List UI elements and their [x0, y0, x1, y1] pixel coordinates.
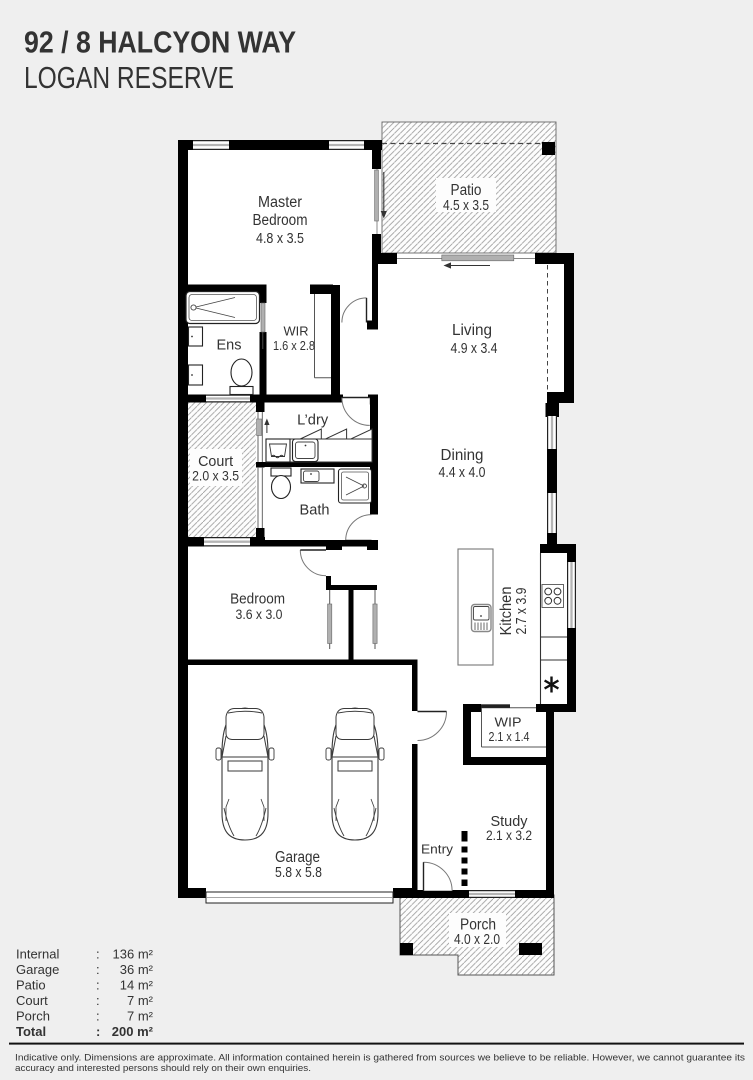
svg-text:accuracy and interested person: accuracy and interested persons should r… — [15, 1063, 311, 1073]
svg-text:4.0 x 2.0: 4.0 x 2.0 — [454, 932, 500, 948]
svg-text:2.7 x 3.9: 2.7 x 3.9 — [514, 588, 530, 635]
svg-text:4.8 x 3.5: 4.8 x 3.5 — [256, 231, 304, 247]
svg-text:2.0 x 3.5: 2.0 x 3.5 — [192, 468, 239, 484]
svg-text:Bedroom: Bedroom — [253, 212, 308, 229]
svg-text:14 m²: 14 m² — [120, 978, 154, 993]
svg-text::: : — [96, 947, 100, 962]
svg-text:1.6 x 2.8: 1.6 x 2.8 — [273, 339, 315, 353]
svg-text:7 m²: 7 m² — [127, 1009, 154, 1024]
svg-text:5.8 x 5.8: 5.8 x 5.8 — [275, 865, 322, 881]
svg-text:200 m²: 200 m² — [112, 1024, 154, 1039]
svg-text:Garage: Garage — [275, 849, 320, 866]
svg-text:Living: Living — [452, 322, 492, 339]
svg-text:2.1 x 1.4: 2.1 x 1.4 — [489, 730, 530, 744]
svg-text:Entry: Entry — [421, 842, 454, 857]
svg-text:L’dry: L’dry — [297, 413, 329, 429]
svg-text:WIR: WIR — [284, 324, 309, 339]
svg-text:Master: Master — [258, 194, 302, 211]
svg-text:36 m²: 36 m² — [120, 962, 154, 977]
svg-text:Garage: Garage — [16, 962, 59, 977]
svg-text::: : — [96, 993, 100, 1008]
svg-text:Porch: Porch — [460, 917, 496, 934]
svg-text:2.1 x 3.2: 2.1 x 3.2 — [486, 827, 532, 843]
svg-text:WIP: WIP — [495, 715, 522, 730]
svg-text:136 m²: 136 m² — [113, 947, 154, 962]
svg-text:7 m²: 7 m² — [127, 993, 154, 1008]
svg-text:Bath: Bath — [300, 503, 330, 519]
svg-text::: : — [96, 962, 100, 977]
svg-text:Porch: Porch — [16, 1009, 50, 1024]
svg-text::: : — [96, 978, 100, 993]
svg-text:Court: Court — [16, 993, 48, 1008]
svg-text::: : — [96, 1009, 100, 1024]
svg-text:Ens: Ens — [217, 338, 242, 354]
svg-text:Total: Total — [16, 1024, 46, 1039]
svg-text:Dining: Dining — [441, 447, 484, 464]
svg-text:4.9 x 3.4: 4.9 x 3.4 — [451, 341, 498, 357]
svg-text:Internal: Internal — [16, 947, 59, 962]
svg-text:4.5 x 3.5: 4.5 x 3.5 — [443, 198, 489, 214]
svg-text:Patio: Patio — [451, 182, 482, 199]
svg-text:4.4 x 4.0: 4.4 x 4.0 — [439, 465, 486, 481]
svg-text:Kitchen: Kitchen — [498, 587, 515, 636]
svg-text:Patio: Patio — [16, 978, 46, 993]
svg-text:3.6 x 3.0: 3.6 x 3.0 — [236, 606, 283, 622]
svg-text:LOGAN RESERVE: LOGAN RESERVE — [24, 60, 234, 95]
svg-text:Indicative only. Dimensions ar: Indicative only. Dimensions are approxim… — [15, 1053, 745, 1063]
svg-text::: : — [96, 1024, 100, 1039]
svg-text:92 / 8 HALCYON WAY: 92 / 8 HALCYON WAY — [24, 25, 296, 60]
